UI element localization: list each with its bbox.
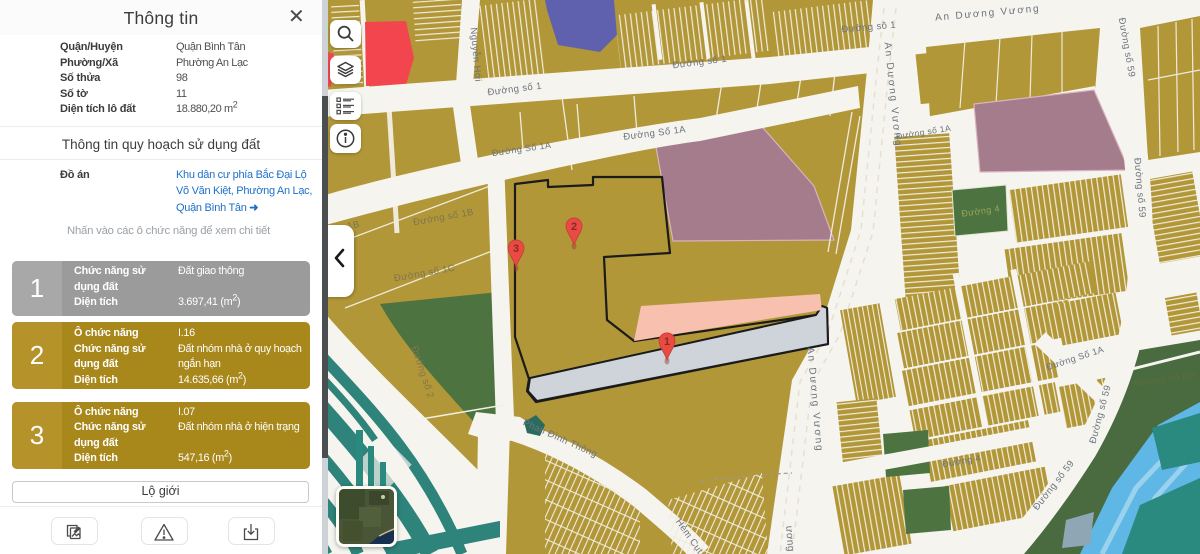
svg-text:3: 3 bbox=[513, 243, 519, 255]
svg-text:ương: ương bbox=[783, 525, 796, 552]
svg-text:1: 1 bbox=[664, 336, 670, 348]
svg-text:2: 2 bbox=[571, 221, 577, 233]
